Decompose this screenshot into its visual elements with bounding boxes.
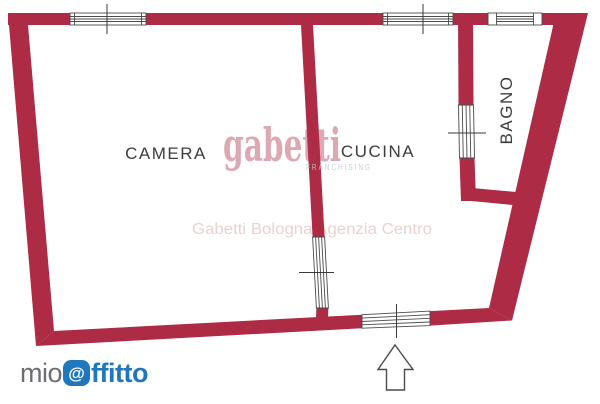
mioaffitto-at-house-icon: @ <box>63 360 90 386</box>
wall-divider-camera-cucina-lower <box>316 308 329 330</box>
window-cucina-top <box>383 13 453 25</box>
wall-bottom-left <box>36 315 362 346</box>
entrance-arrow-icon <box>378 345 413 390</box>
wall-left <box>8 13 54 346</box>
room-label-cucina: CUCINA <box>341 142 415 161</box>
wall-right-slanted <box>489 13 588 321</box>
mioaffitto-logo-prefix: mio <box>20 360 62 387</box>
window-divider-cucina-bagno <box>459 105 475 158</box>
window-bagno-top <box>488 13 542 25</box>
room-label-camera: CAMERA <box>125 144 207 163</box>
wall-divider-cucina-bagno-upper <box>458 13 474 105</box>
walls <box>8 13 588 346</box>
window-camera-top <box>70 13 146 25</box>
mioaffitto-logo: mio @ ffitto <box>20 358 148 388</box>
wall-top-middle <box>146 13 383 25</box>
mioaffitto-logo-suffix: ffitto <box>91 360 148 387</box>
wall-bagno-bottom <box>461 187 516 205</box>
floorplan-svg: Gabetti Bologna Agenzia Centro <box>0 0 600 404</box>
floorplan-image: Gabetti Bologna Agenzia Centro <box>0 0 600 404</box>
room-label-bagno: BAGNO <box>497 76 516 145</box>
franchising-watermark: FRANCHISING <box>306 162 372 172</box>
